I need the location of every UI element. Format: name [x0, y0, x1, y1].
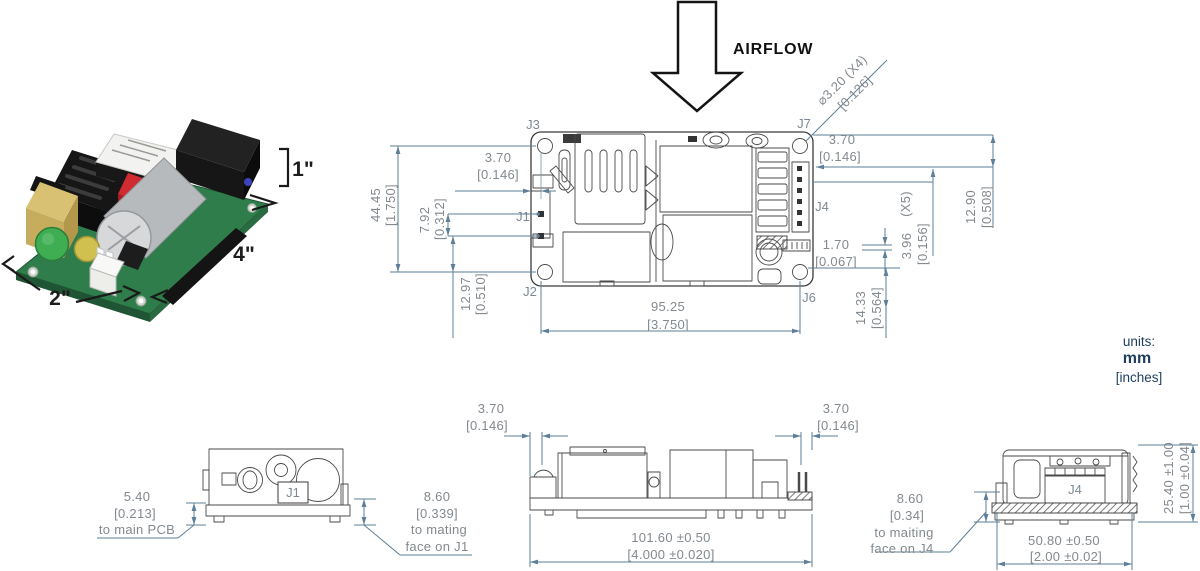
dim-text: [0.156] [915, 223, 930, 265]
dim-text: 12.90 [963, 190, 978, 224]
dim-text: [0.339] [416, 506, 458, 521]
product-photo: 1" 4" 2" [3, 119, 314, 322]
label-j1: J1 [516, 209, 530, 224]
dim-note: to main PCB [99, 522, 175, 537]
dim-text: [0.146] [817, 418, 859, 433]
dim-text: [0.312] [432, 198, 447, 240]
photo-length-label: 4" [233, 243, 255, 266]
pcb-edge-j4 [992, 503, 1137, 513]
label-j7: J7 [797, 116, 811, 131]
dim-text: [0.34] [890, 508, 924, 523]
dim-text: [0.146] [466, 418, 508, 433]
dim-note: to mating [411, 522, 467, 537]
mechanical-drawing-page: 1" 4" 2" AIRFLOW [0, 0, 1200, 571]
dim-pin-to-hole: 14.33 [0.564] [808, 268, 900, 338]
dim-text: 3.70 [829, 132, 856, 147]
photo-height-label: 1" [292, 158, 314, 181]
dim-text: [1.00 ±0.04] [1177, 442, 1192, 514]
photo-width-label: 2" [49, 287, 71, 310]
airflow-label: AIRFLOW [733, 41, 813, 58]
dim-left-overhang: 3.70 [0.146] [466, 401, 568, 476]
side-view-j4: J4 8.60 [0.34] to maiting face on J4 25.… [871, 442, 1199, 570]
dim-text: [2.00 ±0.02] [1030, 549, 1102, 564]
dim-overall-length: 101.60 ±0.50 [4.000 ±0.020] [530, 514, 812, 567]
airflow-arrow [653, 2, 741, 111]
blue-component [244, 178, 252, 186]
side-view-long: 3.70 [0.146] 3.70 [0.146] 101.60 ±0.50 [… [466, 401, 859, 567]
dim-text: 14.33 [853, 291, 868, 325]
dim-overall-height: 25.40 ±1.00 [1.00 ±0.04] [1138, 442, 1198, 522]
dim-j1-to-hole: 12.97 [0.510] [453, 236, 488, 338]
dim-mating-height-j4: 8.60 [0.34] to maiting face on J4 [871, 491, 1001, 556]
dim-text: 8.60 [424, 489, 451, 504]
units-title: units: [1123, 334, 1155, 349]
dim-text: 3.70 [823, 401, 850, 416]
label-j3: J3 [526, 117, 540, 132]
pcb-edge-long [530, 498, 812, 510]
dim-text: [0.146] [477, 167, 519, 182]
dim-text: [4.000 ±0.020] [627, 547, 714, 562]
dim-hole-to-pin: 12.90 [0.508] [963, 135, 994, 228]
dim-text: 95.25 [651, 299, 685, 314]
dim-aux-pin-offset: 1.70 [0.067] [815, 228, 892, 272]
dim-text: [0.564] [869, 287, 884, 329]
pcb-edge [206, 505, 350, 516]
dim-note: face on J4 [871, 541, 934, 556]
dim-text: 50.80 ±0.50 [1028, 533, 1100, 548]
dim-right-edge-offset: 3.70 [0.146] [813, 132, 993, 167]
airflow-indicator: AIRFLOW [653, 2, 813, 111]
label-j1-side: J1 [286, 485, 300, 500]
dim-text: 3.96 [899, 233, 914, 260]
dim-mating-height-j1: 8.60 [0.339] to mating face on J1 [354, 489, 472, 555]
dim-text: 12.97 [458, 277, 473, 311]
pcb-outline [531, 132, 813, 286]
dim-right-overhang: 3.70 [0.146] [775, 401, 859, 465]
enclosure-outline [1003, 450, 1128, 505]
dim-text: (X5) [898, 191, 913, 217]
dim-text: 1.70 [823, 237, 850, 252]
side-view-j1: J1 5.40 [0.213] to main PCB 8.60 [0.339]… [97, 449, 472, 555]
label-j4-side: J4 [1068, 482, 1082, 497]
dim-text: [0.146] [819, 149, 861, 164]
units-secondary: [inches] [1116, 370, 1163, 385]
dim-text: 3.70 [485, 150, 512, 165]
dim-mounting-hole-dia: ⌀3.20 (X4) [0.126] [806, 52, 887, 141]
dim-text: 25.40 ±1.00 [1161, 442, 1176, 514]
dim-left-edge-offset: 3.70 [0.146] [455, 150, 556, 199]
dim-standoff: 5.40 [0.213] to main PCB [97, 489, 206, 538]
dim-text: [1.750] [383, 184, 398, 226]
dim-text: [0.510] [473, 273, 488, 315]
dim-text: [0.213] [114, 506, 156, 521]
dim-text: 5.40 [124, 489, 151, 504]
label-j2: J2 [523, 284, 537, 299]
dim-text: 101.60 ±0.50 [631, 530, 710, 545]
dim-overall-width: 50.80 ±0.50 [2.00 ±0.02] [997, 512, 1132, 570]
dim-note: to maiting [874, 525, 933, 540]
drawing-canvas: 1" 4" 2" AIRFLOW [0, 0, 1200, 571]
units-note: units: mm [inches] [1116, 334, 1163, 385]
label-j4: J4 [815, 199, 829, 214]
dim-text: 8.60 [897, 491, 924, 506]
dim-hole-span-horizontal: 95.25 [3.750] [541, 281, 800, 334]
dim-text: [0.067] [815, 254, 857, 269]
units-primary: mm [1123, 350, 1151, 367]
dim-text: 7.92 [417, 207, 432, 234]
dim-text: [0.508] [979, 186, 994, 228]
label-j6: J6 [802, 290, 816, 305]
dim-text: 44.45 [368, 188, 383, 222]
dim-note: face on J1 [406, 539, 469, 554]
dim-text: [3.750] [647, 317, 689, 332]
dim-text: 3.70 [478, 401, 505, 416]
